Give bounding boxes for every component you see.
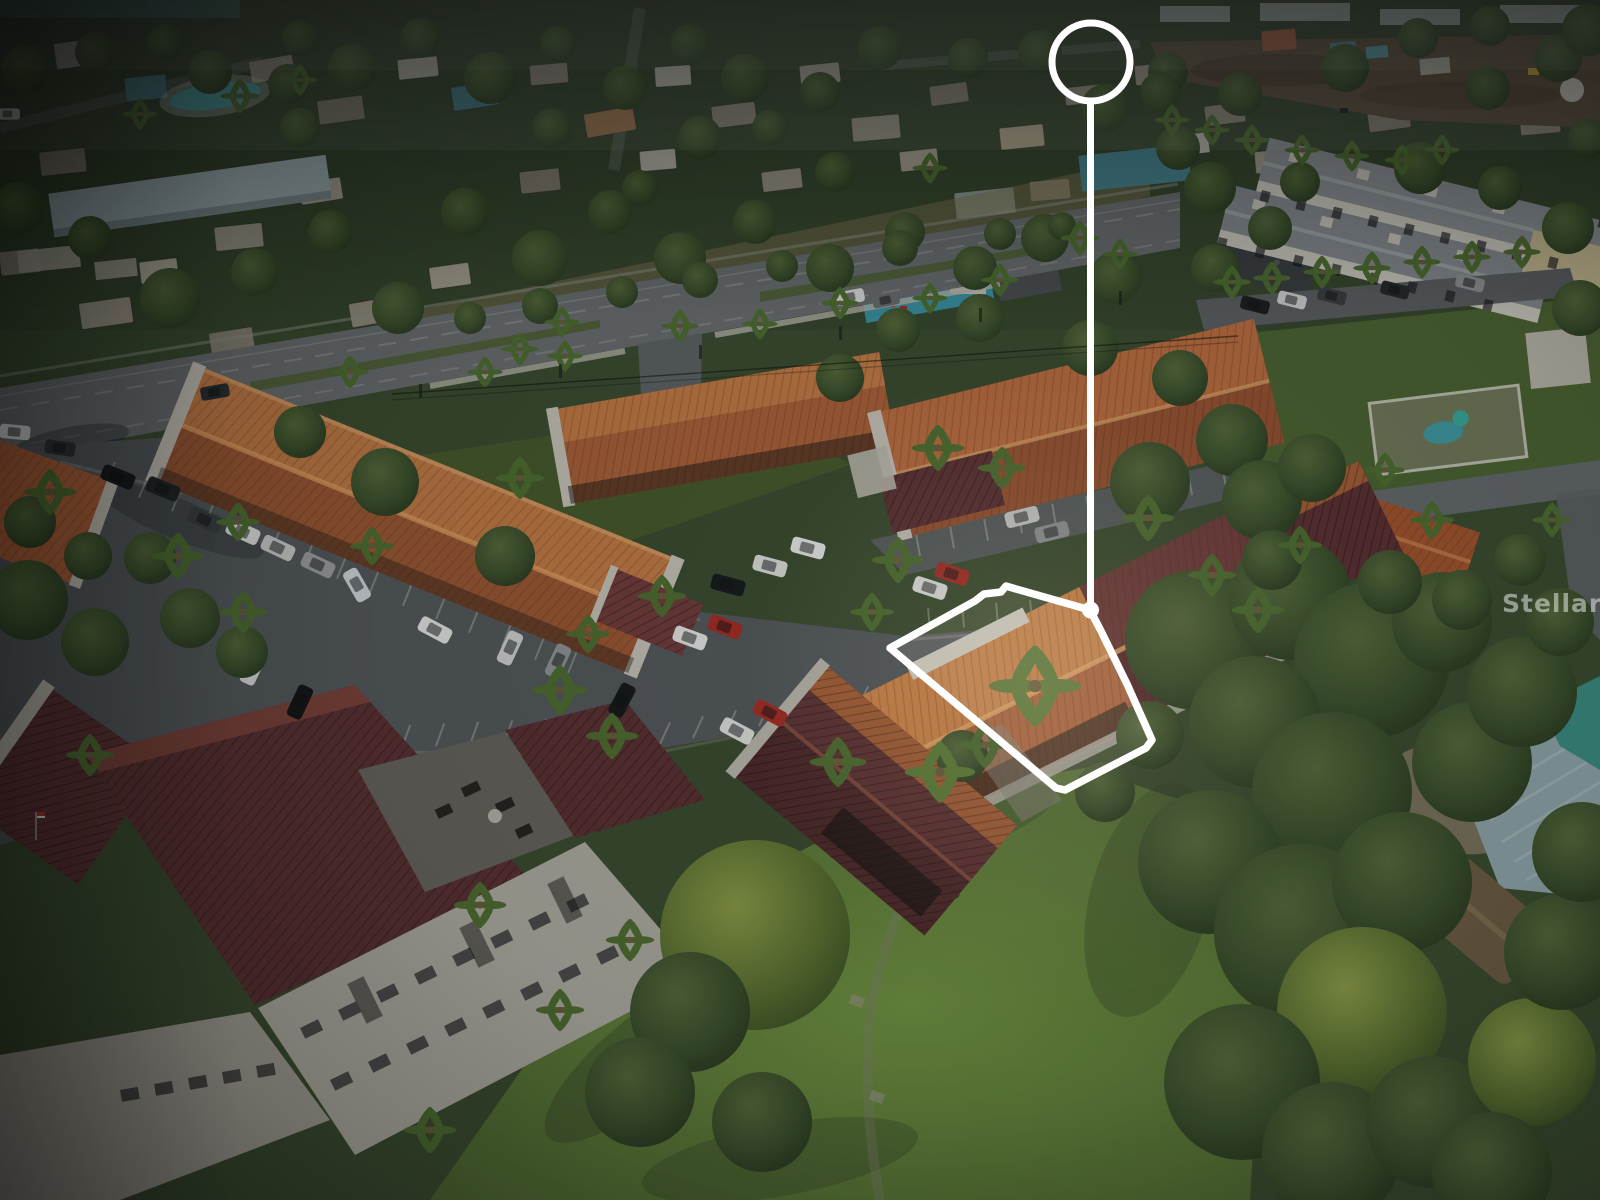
aerial-photo-canvas: Stellar MLS <box>0 0 1600 1200</box>
aerial-photo: Stellar MLS <box>0 0 1600 1200</box>
watermark: Stellar MLS <box>1502 589 1600 618</box>
left-shade <box>0 0 240 1200</box>
marker-anchor-dot <box>1082 602 1099 619</box>
